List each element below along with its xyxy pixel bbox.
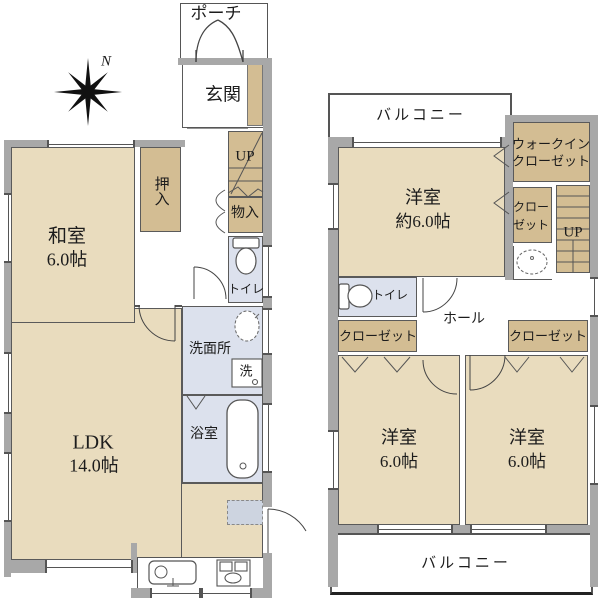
closet-small-2f (513, 187, 552, 243)
toilet-label-2f: トイレ (372, 289, 408, 303)
compass-star (54, 58, 122, 126)
hall-label: ホール (443, 312, 485, 328)
bedroom-top-name-label: 洋室 (405, 188, 441, 209)
bedroom-right-name-label: 洋室 (509, 428, 545, 449)
shoe-cabinet (247, 64, 263, 126)
window (590, 277, 598, 317)
window (201, 588, 252, 598)
ldk-size-label: 14.0帖 (69, 456, 119, 477)
closet-small-label-line1: クロー (513, 201, 549, 215)
bedroom-right-size-label: 6.0帖 (508, 452, 546, 472)
window (4, 352, 11, 414)
kitchen-counter-area (137, 557, 263, 588)
compass-north-label: N (101, 53, 111, 70)
storage-label: 物入 (231, 206, 259, 222)
closet-left-label: クローゼット (339, 330, 417, 345)
window (352, 137, 502, 147)
toilet-label-1f: トイレ (228, 283, 264, 297)
wic-label-line1: ウォークイン (512, 138, 590, 153)
stairs-up-label-1f: UP (235, 148, 254, 165)
washitsu-size-label: 6.0帖 (47, 250, 88, 271)
door-opening (263, 507, 272, 553)
washitsu-name-label: 和室 (48, 226, 86, 248)
fridge-space (227, 500, 263, 525)
wall (590, 115, 598, 587)
entrance-label: 玄関 (205, 85, 241, 106)
closet-small-label-line2: ゼット (513, 219, 549, 233)
ldk-name-label: LDK (72, 432, 113, 455)
window (263, 308, 272, 355)
wall (505, 115, 598, 122)
bedroom-left-size-label: 6.0帖 (380, 452, 418, 472)
porch-label: ポーチ (191, 4, 242, 24)
wic-label-line2: クローゼット (512, 155, 590, 170)
washbasin-alcove (513, 246, 552, 280)
bedroom-top-size-label: 約6.0帖 (395, 212, 450, 232)
wall (328, 525, 598, 533)
wall-line (135, 305, 140, 307)
bath-label: 浴室 (190, 427, 218, 443)
wall-line (175, 305, 182, 307)
window (377, 525, 453, 533)
folding-door-marks-1f (216, 190, 225, 233)
window (328, 183, 338, 230)
window (590, 405, 598, 485)
closet-right-label: クローゼット (509, 330, 587, 345)
wall (178, 58, 272, 65)
balcony-top-label: バルコニー (376, 107, 466, 124)
oshiire-label: 押入 (151, 176, 168, 206)
window (150, 588, 201, 598)
window (263, 245, 272, 298)
bedroom-left-name-label: 洋室 (381, 428, 417, 449)
floor-plan: ポーチ 玄関 押入 和室 6.0帖 UP 物入 トイレ 洗面所 洗 浴室 LDK… (0, 0, 600, 600)
toilet-door-arc-1f (194, 267, 226, 299)
stairs-up-label-2f: UP (563, 224, 582, 241)
hall-door-arc-2f (423, 278, 457, 312)
window (45, 560, 133, 573)
washroom-label: 洗面所 (189, 342, 231, 358)
window (4, 193, 11, 263)
laundry-label: 洗 (239, 365, 252, 380)
window (470, 525, 547, 533)
kitchen-door-arc (268, 509, 306, 553)
balcony-bottom-label: バルコニー (421, 555, 511, 572)
window (328, 430, 338, 490)
window (4, 452, 11, 522)
window (263, 403, 272, 473)
window (47, 140, 135, 147)
